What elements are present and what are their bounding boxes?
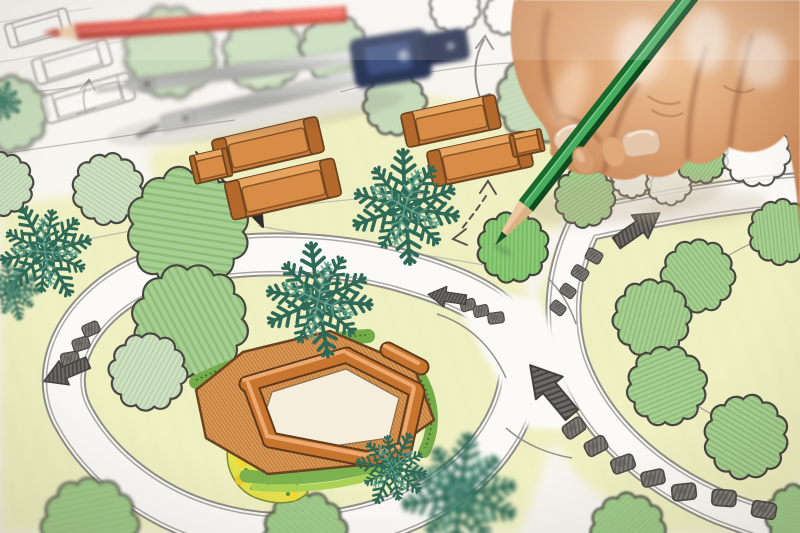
top-haze [0, 0, 800, 60]
photo-landscape-plan [0, 0, 800, 533]
vignette [0, 0, 800, 533]
